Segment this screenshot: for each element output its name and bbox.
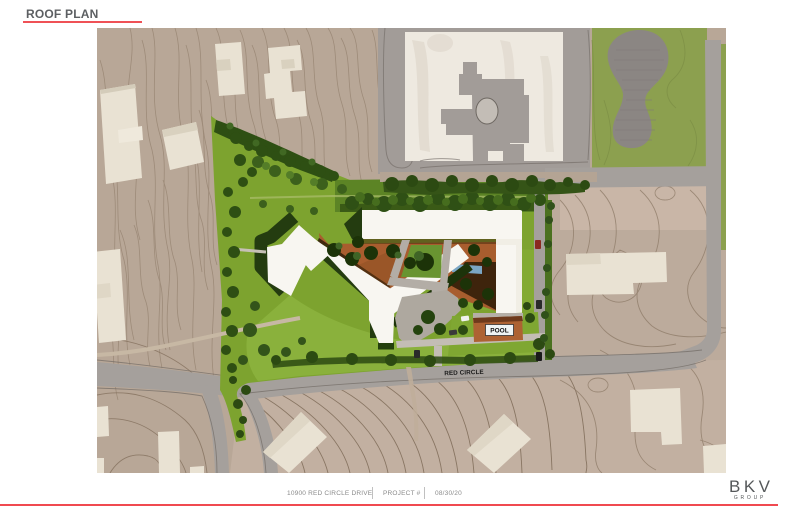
svg-text:RED CIRCLE: RED CIRCLE xyxy=(444,369,484,377)
svg-text:POOL: POOL xyxy=(490,328,508,335)
